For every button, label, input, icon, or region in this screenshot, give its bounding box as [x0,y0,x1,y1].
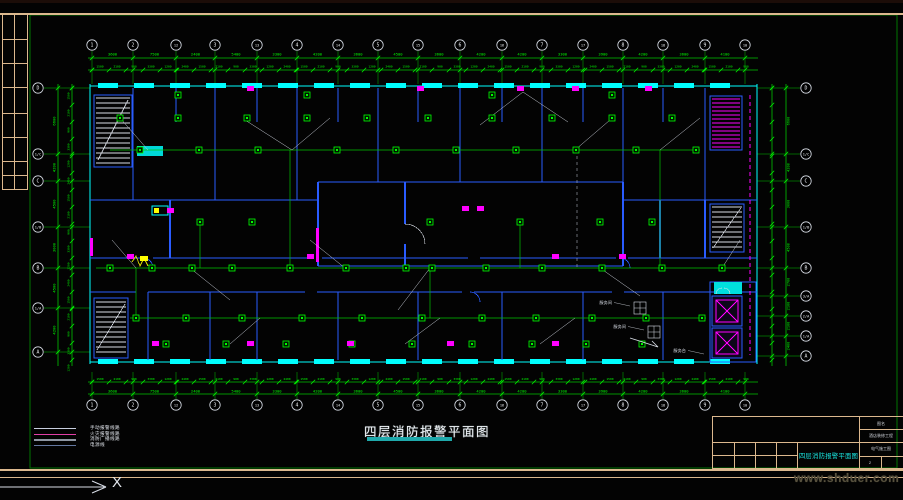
svg-text:4500: 4500 [393,52,403,57]
svg-text:4200: 4200 [476,52,486,57]
svg-text:4: 4 [296,43,299,49]
svg-text:1200: 1200 [266,377,273,381]
svg-text:服务台: 服务台 [673,347,686,354]
svg-text:900: 900 [67,127,71,133]
title-block-project: 酒店装修工程 [859,430,903,441]
svg-text:3300: 3300 [558,388,568,393]
svg-text:5400: 5400 [231,52,241,57]
svg-text:5: 5 [377,403,380,409]
svg-text:4500: 4500 [787,243,791,252]
svg-text:17: 17 [581,404,585,408]
svg-text:3300: 3300 [249,65,256,69]
alarm-circuit [96,86,750,347]
svg-text:2400: 2400 [67,177,71,184]
svg-text:1500: 1500 [504,377,511,381]
svg-text:1500: 1500 [96,65,103,69]
svg-text:3300: 3300 [67,245,71,252]
svg-text:2100: 2100 [317,65,324,69]
svg-text:9: 9 [704,43,707,49]
svg-text:13: 13 [255,44,259,48]
legend-item: 电源线 [34,443,184,449]
svg-text:1: 1 [91,43,94,49]
svg-text:3300: 3300 [67,347,71,354]
svg-text:4200: 4200 [638,52,648,57]
svg-text:13: 13 [255,404,259,408]
svg-text:4200: 4200 [517,388,527,393]
svg-text:3300: 3300 [147,65,154,69]
svg-text:900: 900 [67,229,71,235]
svg-text:2400: 2400 [487,377,494,381]
svg-text:3300: 3300 [351,65,358,69]
svg-text:2100: 2100 [67,211,71,218]
svg-text:15: 15 [416,44,420,48]
svg-text:3300: 3300 [147,377,154,381]
svg-text:1500: 1500 [198,65,205,69]
svg-text:14: 14 [336,404,340,408]
svg-text:4200: 4200 [787,163,791,172]
svg-text:1200: 1200 [67,364,71,371]
svg-text:4100: 4100 [720,52,730,57]
sheet-border-bottom [0,469,903,471]
svg-text:9: 9 [704,403,707,409]
svg-text:4500: 4500 [52,199,57,209]
svg-text:900: 900 [641,377,647,381]
legend: 手动报警线路火灾报警线路消防广播线路电源线 [34,426,184,448]
svg-text:3600: 3600 [679,52,689,57]
svg-text:B: B [805,266,808,272]
title-block-category: 电气施工图 [859,443,903,455]
svg-text:4500: 4500 [393,388,403,393]
svg-text:2400: 2400 [181,377,188,381]
svg-text:3600: 3600 [108,388,118,393]
svg-text:2100: 2100 [317,377,324,381]
svg-text:1500: 1500 [300,65,307,69]
svg-text:14: 14 [336,44,340,48]
svg-text:2100: 2100 [419,65,426,69]
svg-text:4200: 4200 [476,388,486,393]
svg-text:3600: 3600 [679,388,689,393]
svg-text:6: 6 [459,43,462,49]
svg-text:4200: 4200 [313,52,323,57]
svg-text:4500: 4500 [52,283,57,293]
svg-text:2100: 2100 [623,65,630,69]
grid-bubbles: 1212313414515616717818910121231341451561… [33,40,811,410]
svg-text:1500: 1500 [67,92,71,99]
svg-text:1500: 1500 [402,65,409,69]
svg-text:18: 18 [661,404,665,408]
svg-text:900: 900 [335,377,341,381]
svg-text:3600: 3600 [353,52,363,57]
svg-text:900: 900 [67,331,71,337]
svg-text:7: 7 [541,403,544,409]
title-block: 四层消防报警平面图 图名 酒店装修工程 电气施工图 2 [712,416,903,469]
svg-text:900: 900 [743,377,749,381]
svg-text:2400: 2400 [385,377,392,381]
svg-text:2100: 2100 [67,313,71,320]
svg-text:D: D [805,86,808,92]
svg-text:7500: 7500 [150,52,160,57]
svg-text:2100: 2100 [215,65,222,69]
svg-text:2: 2 [132,403,135,409]
svg-text:3300: 3300 [67,143,71,150]
svg-text:3300: 3300 [657,377,664,381]
title-block-sheet-no: 2 [859,457,881,467]
svg-text:12: 12 [174,44,178,48]
floor-plan [90,83,757,364]
svg-text:900: 900 [233,377,239,381]
svg-text:1500: 1500 [606,377,613,381]
svg-text:2400: 2400 [691,377,698,381]
title-underline [367,437,452,441]
svg-text:900: 900 [641,65,647,69]
svg-text:5400: 5400 [231,388,241,393]
svg-text:C: C [805,179,808,185]
svg-text:2100: 2100 [725,65,732,69]
svg-text:A: A [805,354,808,360]
svg-text:7500: 7500 [150,388,160,393]
svg-text:16: 16 [500,404,504,408]
svg-text:10: 10 [743,404,747,408]
svg-text:1200: 1200 [470,65,477,69]
svg-text:3300: 3300 [555,65,562,69]
svg-text:900: 900 [335,65,341,69]
svg-text:18: 18 [661,44,665,48]
svg-text:900: 900 [437,65,443,69]
sheet-border-bottom-2 [0,477,903,478]
svg-text:6600: 6600 [52,116,57,126]
svg-text:1/B: 1/B [803,226,810,230]
svg-text:2400: 2400 [283,377,290,381]
svg-text:1/A: 1/A [803,335,810,339]
svg-text:A: A [37,350,40,356]
svg-text:3300: 3300 [453,377,460,381]
svg-text:3/A: 3/A [803,295,810,299]
cad-sheet: 3600750024005400330042003600450036004200… [0,0,903,500]
svg-text:2400: 2400 [589,377,596,381]
svg-text:1200: 1200 [67,160,71,167]
svg-text:2100: 2100 [787,302,791,311]
svg-text:2100: 2100 [521,377,528,381]
svg-text:1: 1 [91,403,94,409]
svg-text:3300: 3300 [657,65,664,69]
svg-text:16: 16 [500,44,504,48]
svg-text:2100: 2100 [787,322,791,331]
svg-text:2400: 2400 [487,65,494,69]
svg-text:10: 10 [743,44,747,48]
svg-text:1500: 1500 [708,65,715,69]
svg-text:2/A: 2/A [803,315,810,319]
svg-text:6600: 6600 [787,117,791,126]
svg-text:3300: 3300 [272,388,282,393]
svg-text:12: 12 [174,404,178,408]
svg-text:2100: 2100 [419,377,426,381]
svg-text:2400: 2400 [691,65,698,69]
svg-text:3: 3 [214,403,217,409]
svg-text:1200: 1200 [67,262,71,269]
svg-text:1200: 1200 [368,65,375,69]
svg-text:4200: 4200 [313,388,323,393]
svg-text:1200: 1200 [368,377,375,381]
svg-text:4200: 4200 [52,325,57,335]
svg-text:3: 3 [214,43,217,49]
svg-text:900: 900 [233,65,239,69]
svg-text:6: 6 [459,403,462,409]
svg-text:C: C [37,179,40,185]
svg-text:2: 2 [132,43,135,49]
grid-leader-lines [44,51,800,399]
svg-text:900: 900 [539,65,545,69]
svg-text:1500: 1500 [67,296,71,303]
svg-text:8: 8 [622,43,625,49]
svg-text:1500: 1500 [198,377,205,381]
svg-text:3900: 3900 [598,388,608,393]
sheet-border-top [0,13,903,15]
svg-text:15: 15 [416,404,420,408]
svg-text:2400: 2400 [191,388,201,393]
svg-text:3600: 3600 [353,388,363,393]
svg-text:1500: 1500 [67,194,71,201]
svg-text:2100: 2100 [113,65,120,69]
svg-text:3600: 3600 [434,388,444,393]
svg-text:3300: 3300 [249,377,256,381]
top-strip [0,0,903,3]
svg-text:900: 900 [539,377,545,381]
svg-text:1500: 1500 [504,65,511,69]
svg-text:1200: 1200 [164,65,171,69]
svg-text:4200: 4200 [52,162,57,172]
svg-text:3300: 3300 [272,52,282,57]
svg-text:4: 4 [296,403,299,409]
title-block-field-top: 图名 [859,418,903,429]
svg-text:D: D [37,86,40,92]
svg-text:2100: 2100 [113,377,120,381]
svg-text:2400: 2400 [589,65,596,69]
svg-text:1/B: 1/B [35,226,42,230]
svg-text:1200: 1200 [674,377,681,381]
svg-text:1500: 1500 [708,377,715,381]
svg-text:900: 900 [743,65,749,69]
svg-text:3300: 3300 [558,52,568,57]
svg-text:17: 17 [581,44,585,48]
svg-text:2400: 2400 [67,279,71,286]
legend-line-sample [34,445,76,446]
svg-text:3300: 3300 [555,377,562,381]
svg-text:服务间: 服务间 [599,299,612,306]
svg-text:2400: 2400 [787,342,791,351]
svg-text:2400: 2400 [283,65,290,69]
revision-table [2,14,28,190]
svg-text:2100: 2100 [521,65,528,69]
svg-text:1200: 1200 [572,377,579,381]
svg-text:1500: 1500 [606,65,613,69]
svg-text:2700: 2700 [787,278,791,287]
watermark: www.shduer.com [794,471,899,485]
svg-text:3600: 3600 [108,52,118,57]
svg-text:2400: 2400 [181,65,188,69]
svg-text:2100: 2100 [623,377,630,381]
svg-text:3900: 3900 [598,52,608,57]
svg-text:1200: 1200 [674,65,681,69]
svg-text:1/C: 1/C [35,153,42,157]
svg-text:4200: 4200 [517,52,527,57]
legend-label: 电源线 [90,442,105,448]
svg-text:1/C: 1/C [803,153,810,157]
svg-text:1500: 1500 [300,377,307,381]
plan-annotations: 服务间服务间服务台 [599,299,704,354]
svg-text:3600: 3600 [434,52,444,57]
svg-text:1500: 1500 [402,377,409,381]
svg-text:2400: 2400 [385,65,392,69]
ucs-x-label: X [112,474,122,491]
svg-text:3000: 3000 [52,242,57,252]
svg-text:1200: 1200 [266,65,273,69]
svg-text:5: 5 [377,43,380,49]
svg-text:4100: 4100 [720,388,730,393]
ucs-axis-icon [0,481,106,493]
svg-text:3000: 3000 [787,200,791,209]
svg-text:3300: 3300 [351,377,358,381]
svg-text:900: 900 [131,377,137,381]
legend-line-sample [34,428,76,429]
svg-text:900: 900 [131,65,137,69]
svg-text:2100: 2100 [725,377,732,381]
legend-line-sample [34,434,76,435]
svg-text:B: B [37,266,40,272]
svg-text:1200: 1200 [572,65,579,69]
dimension-lines: 3600750024005400330042003600450036004200… [52,52,791,397]
svg-text:7: 7 [541,43,544,49]
svg-text:1200: 1200 [164,377,171,381]
svg-text:900: 900 [437,377,443,381]
svg-text:服务间: 服务间 [613,323,626,330]
svg-text:1/A: 1/A [35,307,42,311]
svg-text:2100: 2100 [67,109,71,116]
svg-text:3300: 3300 [453,65,460,69]
svg-text:1200: 1200 [470,377,477,381]
inner-frame [30,15,897,468]
svg-text:4200: 4200 [638,388,648,393]
svg-text:2400: 2400 [191,52,201,57]
svg-text:2100: 2100 [215,377,222,381]
svg-text:8: 8 [622,403,625,409]
title-block-drawing-name: 四层消防报警平面图 [798,444,859,466]
legend-line-sample [34,439,76,440]
svg-text:1500: 1500 [96,377,103,381]
